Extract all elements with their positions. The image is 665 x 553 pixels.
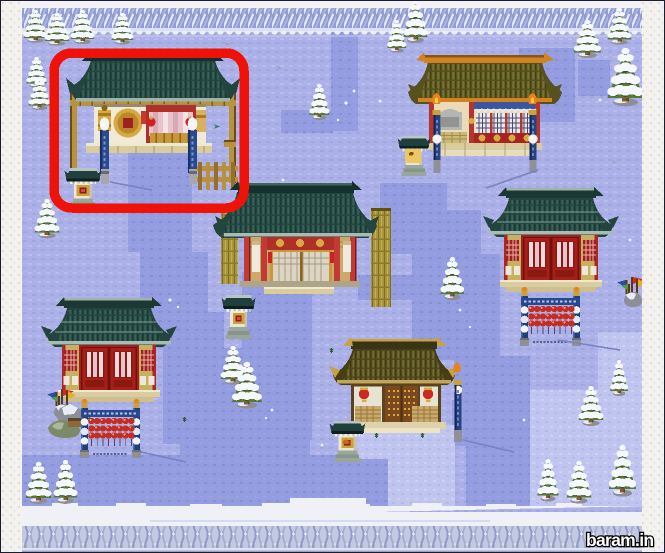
svg-text:baram.in: baram.in [586,530,653,550]
